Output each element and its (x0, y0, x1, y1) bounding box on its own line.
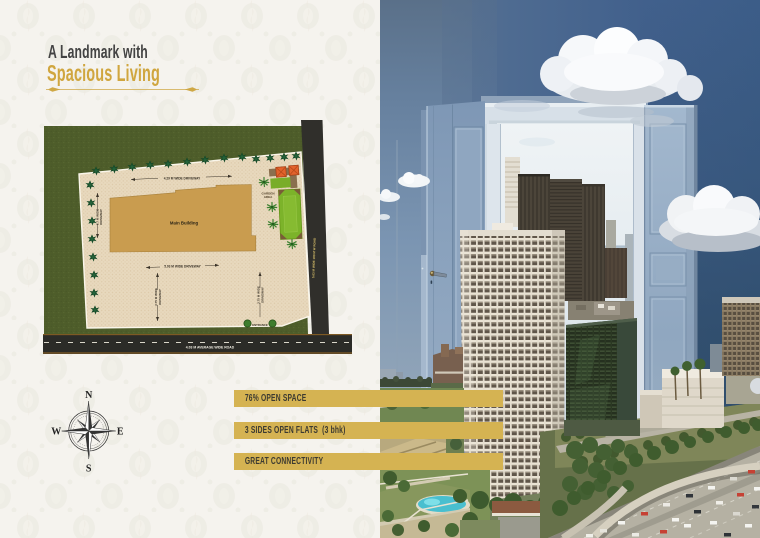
svg-text:S: S (86, 464, 92, 473)
svg-text:W: W (51, 427, 61, 438)
svg-text:DRIVEWAY: DRIVEWAY (99, 209, 103, 225)
svg-text:ENTRANCE: ENTRANCE (252, 323, 268, 327)
svg-text:N: N (85, 390, 93, 401)
svg-text:Main Building: Main Building (170, 221, 199, 226)
svg-text:E: E (117, 427, 124, 438)
svg-text:5.03 M WIDE DRIVEWAY: 5.03 M WIDE DRIVEWAY (164, 265, 201, 269)
svg-text:AREA: AREA (264, 195, 273, 199)
svg-text:DRIVEWAY: DRIVEWAY (260, 287, 264, 303)
svg-text:4.03 M AVERAGE WIDE ROAD: 4.03 M AVERAGE WIDE ROAD (186, 346, 235, 350)
svg-text:DRIVEWAY: DRIVEWAY (158, 289, 162, 305)
svg-text:4.29 M WIDE DRIVEWAY: 4.29 M WIDE DRIVEWAY (164, 177, 201, 181)
